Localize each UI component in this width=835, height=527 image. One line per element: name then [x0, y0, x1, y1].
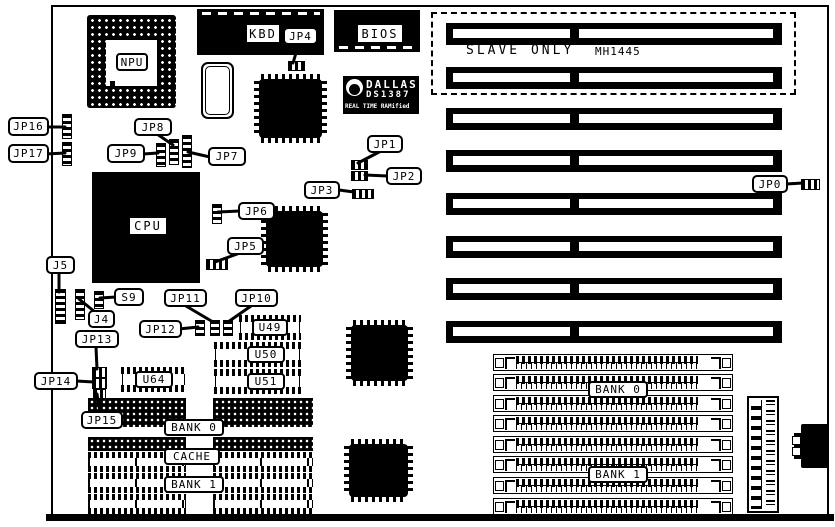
jumper-jp17 — [62, 142, 72, 166]
slave-only-label: SLAVE ONLY — [466, 43, 574, 58]
bank0-left-label: BANK 0 — [164, 419, 224, 436]
u51-label: U51 — [247, 373, 285, 390]
isa-slot-3 — [446, 108, 782, 130]
jumper-jp13 — [92, 367, 107, 378]
jumper-jp3 — [352, 189, 374, 199]
callout-jp17: JP17 — [8, 144, 49, 163]
callout-jp10: JP10 — [235, 289, 278, 307]
callout-j4: J4 — [88, 310, 115, 328]
callout-jp4: JP4 — [283, 27, 318, 45]
simm-slot-1 — [493, 354, 733, 371]
callout-s9: S9 — [114, 288, 144, 306]
bank0-right-label: BANK 0 — [588, 381, 648, 398]
isa-slot-1 — [446, 23, 782, 45]
jumper-jp4 — [288, 61, 305, 71]
callout-jp1: JP1 — [367, 135, 403, 153]
board-bottom-edge — [46, 514, 834, 521]
callout-j5: J5 — [46, 256, 75, 274]
cache-label: CACHE — [164, 448, 220, 465]
power-connector — [747, 396, 779, 513]
memory-row — [88, 494, 186, 514]
simm-slot-4 — [493, 415, 733, 432]
callout-jp15: JP15 — [81, 411, 123, 429]
jumper-jp16 — [62, 114, 72, 139]
header-j5 — [55, 289, 66, 324]
cpu-label: CPU — [130, 218, 166, 234]
jumper-jp0 — [801, 179, 820, 190]
dallas-tagline: REAL TIME RAMified — [345, 103, 409, 110]
bios-label: BIOS — [358, 25, 402, 42]
bank1-left-label: BANK 1 — [164, 476, 224, 493]
isa-slot-8 — [446, 321, 782, 343]
qfp-chip-keyboard-controller — [254, 74, 327, 143]
callout-jp12: JP12 — [139, 320, 182, 338]
u50-label: U50 — [247, 346, 285, 363]
callout-jp11: JP11 — [164, 289, 207, 307]
npu-pin1-marker — [110, 81, 115, 86]
qfp-chip-chipset-3 — [344, 439, 413, 502]
memory-row — [213, 398, 313, 427]
jumper-jp15 — [93, 389, 106, 399]
callout-jp9: JP9 — [107, 144, 145, 163]
jumper-jp8 — [169, 139, 179, 165]
memory-row — [213, 494, 313, 514]
isa-slot-7 — [446, 278, 782, 300]
callout-jp7: JP7 — [208, 147, 246, 166]
header-j4 — [75, 289, 85, 320]
dallas-rtc-chip: DALLAS DS1387 REAL TIME RAMified — [343, 76, 419, 114]
dallas-logo — [346, 79, 363, 96]
kbd-label: KBD — [247, 25, 279, 42]
jumper-jp12 — [195, 320, 205, 336]
isa-slot-4 — [446, 150, 782, 172]
simm-slot-8 — [493, 498, 733, 515]
keyboard-connector — [801, 424, 829, 468]
npu-label: NPU — [116, 53, 148, 71]
dallas-part-number: DS1387 — [366, 90, 411, 100]
motherboard-diagram: SLAVE ONLY MH1445 NPU KBD BIOS DALLAS DS… — [0, 0, 835, 527]
jumper-jp14 — [92, 378, 107, 389]
callout-jp2: JP2 — [386, 167, 422, 185]
jumper-jp7 — [182, 135, 192, 168]
crystal-oscillator — [201, 62, 234, 119]
jumper-jp2 — [351, 171, 368, 181]
qfp-chip-chipset-2 — [346, 320, 413, 386]
callout-jp8: JP8 — [134, 118, 172, 136]
memory-row — [213, 452, 313, 472]
jumper-jp10 — [223, 320, 233, 336]
model-number-label: MH1445 — [595, 45, 641, 58]
callout-jp16: JP16 — [8, 117, 49, 136]
callout-jp5: JP5 — [227, 237, 264, 255]
jumper-jp5 — [206, 259, 228, 270]
bios-dashed-line — [339, 46, 417, 49]
isa-slot-2 — [446, 67, 782, 89]
jumper-jp6 — [212, 204, 222, 224]
bank1-right-label: BANK 1 — [588, 466, 648, 483]
u49-label: U49 — [252, 319, 288, 336]
callout-jp0: JP0 — [752, 175, 788, 193]
callout-jp6: JP6 — [238, 202, 275, 220]
memory-row — [213, 473, 313, 493]
keyboard-connector-pin — [792, 436, 801, 445]
jumper-jp9 — [156, 143, 166, 167]
callout-jp13: JP13 — [75, 330, 119, 348]
keyboard-connector-pin — [792, 447, 801, 456]
isa-slot-6 — [446, 236, 782, 258]
jumper-jp1 — [351, 160, 368, 170]
u64-label: U64 — [135, 371, 173, 388]
simm-slot-5 — [493, 436, 733, 453]
callout-jp14: JP14 — [34, 372, 78, 390]
memory-row — [213, 437, 313, 451]
jumper-jp11 — [210, 320, 220, 336]
jumper-s9 — [94, 291, 104, 309]
kbd-dashed-line — [202, 12, 320, 15]
isa-slot-5 — [446, 193, 782, 215]
callout-jp3: JP3 — [304, 181, 340, 199]
